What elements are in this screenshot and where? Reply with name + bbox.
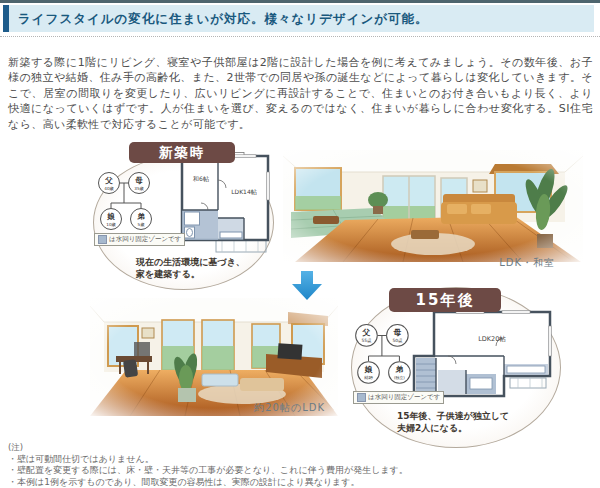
mother-age: 35歳 — [134, 186, 144, 191]
water-zone-legend-before: は水回り固定ゾーンです — [94, 233, 185, 246]
floor-plan-before: 和6帖 LDK14帖 — [172, 152, 274, 256]
water-zone-swatch — [357, 393, 366, 402]
father-label: 父 — [104, 176, 113, 185]
son-label: 弟 — [395, 365, 404, 374]
room-label-ldk20: LDK20帖 — [478, 335, 506, 343]
father-age: 55歳 — [362, 338, 372, 343]
footnotes: (注) ・壁は可動間仕切ではありません。 ・壁配置を変更する際には、床・壁・天井… — [8, 442, 594, 488]
after-caption: 15年後、子供達が独立して 夫婦2人になる。 — [397, 410, 509, 434]
mother-label: 母 — [393, 328, 402, 337]
daughter-label: 娘 — [106, 212, 115, 221]
footnote-label: (注) — [8, 442, 594, 454]
interior-illustration-20jo-ldk — [90, 298, 338, 416]
after-badge: 15年後 — [389, 288, 501, 312]
father-age: 40歳 — [104, 186, 114, 191]
daughter-status: 結婚 — [363, 375, 373, 380]
son-label: 弟 — [136, 212, 145, 221]
footnote-item: ・本例は1例を示すものであり、間取変更の容易性は、実際の設計により異なります。 — [8, 477, 594, 488]
room-label-ldk: LDK14帖 — [231, 188, 257, 196]
footnote-item: ・壁配置を変更する際には、床・壁・天井等の工事が必要となり、これに伴う費用が発生… — [8, 465, 594, 477]
floor-plan-after: LDK20帖 — [404, 308, 556, 402]
before-badge: 新築時 — [129, 142, 235, 163]
water-zone-legend-label: は水回り固定ゾーンです — [109, 235, 181, 244]
daughter-age: 10歳 — [106, 222, 116, 227]
room-label-washitsu: 和6帖 — [193, 175, 209, 183]
mother-label: 母 — [134, 176, 143, 185]
photo1-caption: LDK・和室 — [430, 256, 555, 270]
water-zone-swatch — [98, 235, 107, 244]
before-caption: 現在の生活環境に基づき、 家を建築する。 — [136, 256, 245, 280]
mother-age: 50歳 — [392, 338, 402, 343]
dotted-divider — [0, 36, 600, 37]
down-arrow-icon — [291, 271, 323, 301]
water-zone-legend-after: は水回り固定ゾーンです — [353, 391, 444, 404]
top-divider — [0, 0, 600, 3]
photo2-caption: 約20帖のLDK — [200, 401, 325, 415]
footnote-item: ・壁は可動間仕切ではありません。 — [8, 454, 594, 466]
daughter-label: 娘 — [364, 365, 373, 374]
water-zone-legend-label: は水回り固定ゾーンです — [368, 393, 440, 402]
intro-paragraph: 新築する際に1階にリビング、寝室や子供部屋は2階に設計した場合を例に考えてみまし… — [8, 55, 593, 132]
father-label: 父 — [362, 328, 371, 337]
section-title: ライフスタイルの変化に住まいが対応。様々なリデザインが可能。 — [3, 5, 594, 32]
family-tree-before: 父 40歳 母 35歳 娘 10歳 弟 5歳 — [96, 170, 158, 236]
page: ライフスタイルの変化に住まいが対応。様々なリデザインが可能。 新築する際に1階に… — [0, 0, 600, 488]
interior-illustration-ldk-washitsu — [283, 150, 583, 262]
son-age: 5歳 — [138, 222, 146, 227]
